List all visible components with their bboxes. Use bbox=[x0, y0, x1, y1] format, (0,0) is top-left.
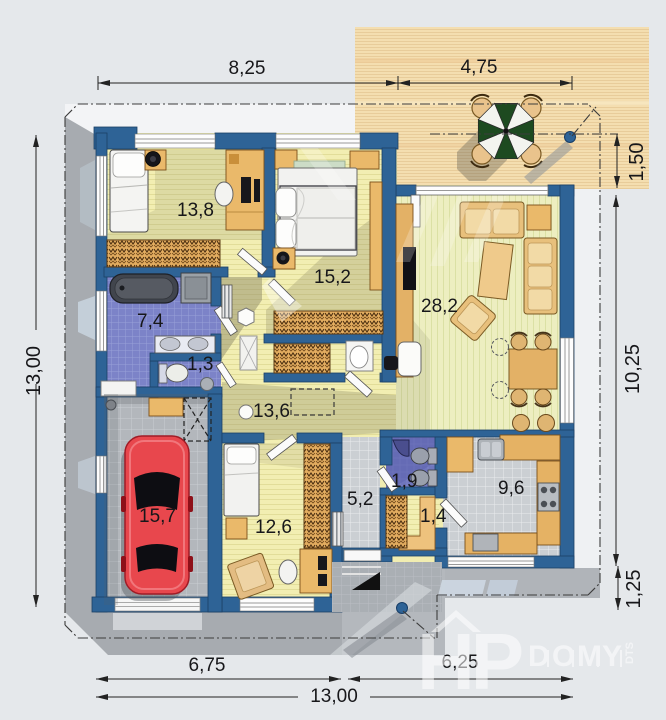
svg-text:10,25: 10,25 bbox=[622, 344, 644, 394]
svg-text:8,25: 8,25 bbox=[229, 58, 266, 79]
svg-text:15,7: 15,7 bbox=[139, 506, 176, 527]
svg-text:15,2: 15,2 bbox=[314, 267, 351, 288]
svg-text:28,2: 28,2 bbox=[421, 296, 458, 317]
svg-text:4,75: 4,75 bbox=[461, 57, 498, 78]
svg-text:13,00: 13,00 bbox=[23, 346, 45, 396]
svg-text:1,50: 1,50 bbox=[626, 143, 648, 182]
svg-text:13,6: 13,6 bbox=[253, 401, 290, 422]
svg-text:7,4: 7,4 bbox=[137, 311, 164, 332]
svg-text:13,00: 13,00 bbox=[310, 686, 358, 707]
svg-text:5,2: 5,2 bbox=[347, 489, 373, 510]
svg-text:1,3: 1,3 bbox=[187, 354, 213, 375]
svg-text:1,9: 1,9 bbox=[391, 471, 417, 492]
svg-text:6,75: 6,75 bbox=[189, 655, 226, 676]
svg-text:Y: Y bbox=[602, 640, 622, 673]
svg-text:9,6: 9,6 bbox=[498, 478, 524, 499]
svg-text:12,6: 12,6 bbox=[255, 517, 292, 538]
svg-text:O: O bbox=[552, 640, 575, 673]
svg-text:1,4: 1,4 bbox=[420, 506, 447, 527]
svg-text:D: D bbox=[528, 640, 550, 673]
svg-text:HP: HP bbox=[417, 617, 522, 706]
svg-text:1,25: 1,25 bbox=[623, 570, 645, 609]
svg-text:DTS: DTS bbox=[624, 642, 636, 664]
svg-text:13,8: 13,8 bbox=[177, 200, 214, 221]
